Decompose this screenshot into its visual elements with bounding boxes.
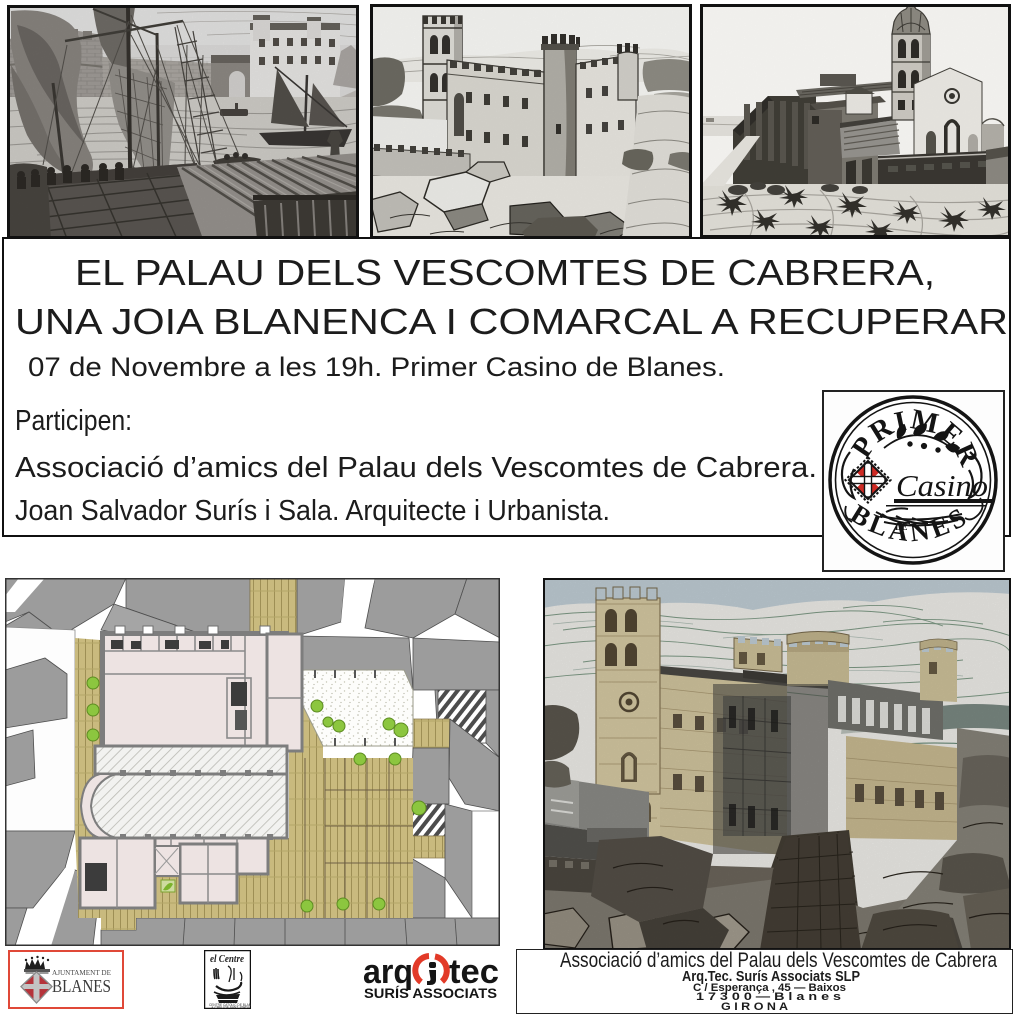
svg-text:07 de Novembre a les 19h. Prim: 07 de Novembre a les 19h. Primer Casino … — [28, 352, 725, 382]
svg-text:G I R O N A: G I R O N A — [721, 1001, 788, 1013]
svg-text:Joan Salvador Surís i Sala. Ar: Joan Salvador Surís i Sala. Arquitecte i… — [15, 495, 610, 527]
svg-text:Participen:: Participen: — [15, 405, 132, 437]
svg-text:EL PALAU DELS VESCOMTES DE CAB: EL PALAU DELS VESCOMTES DE CABRERA, — [75, 252, 935, 293]
svg-text:Associació d’amics del Palau d: Associació d’amics del Palau dels Vescom… — [15, 452, 817, 484]
svg-text:UNA JOIA BLANENCA I COMARCAL A: UNA JOIA BLANENCA I COMARCAL A RECUPERAR — [15, 301, 1008, 342]
